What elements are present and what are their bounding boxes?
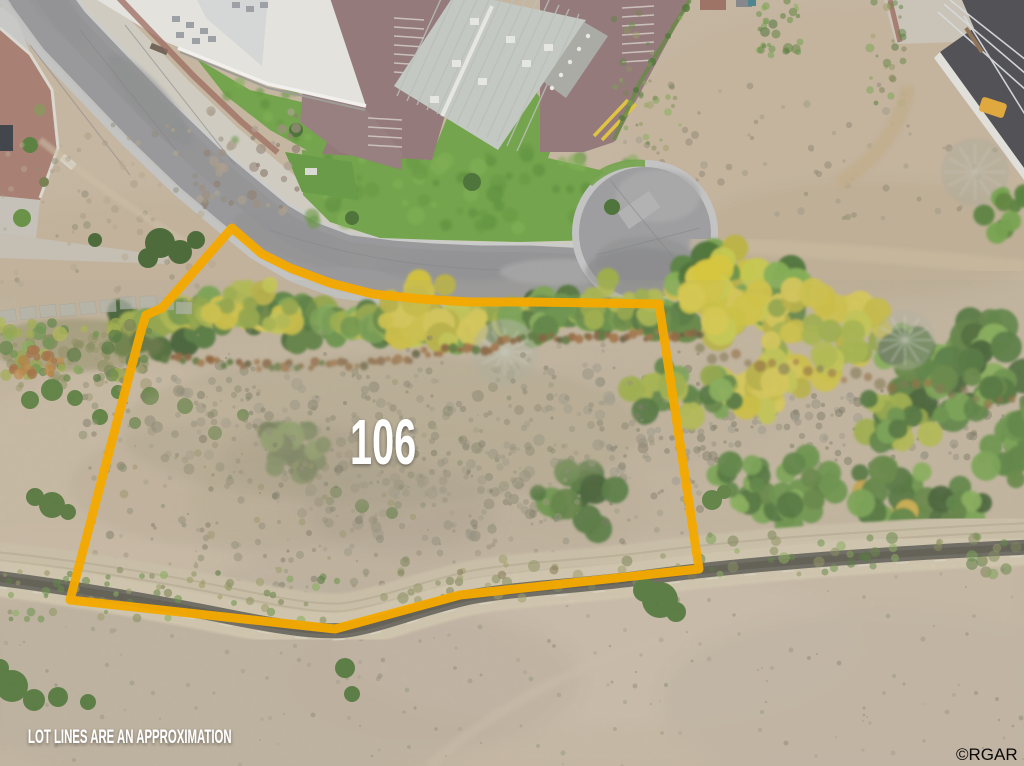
svg-text:©RGAR: ©RGAR (956, 745, 1018, 764)
svg-text:106: 106 (350, 408, 416, 479)
svg-text:LOT LINES ARE AN APPROXIMATION: LOT LINES ARE AN APPROXIMATION (28, 727, 232, 748)
